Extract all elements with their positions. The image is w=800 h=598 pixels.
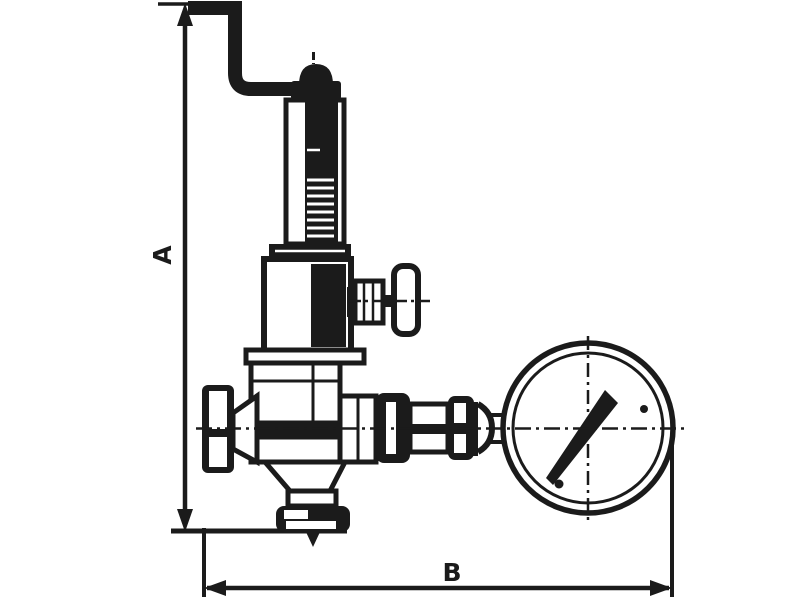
spring-housing <box>286 100 344 244</box>
gauge-dial-dot-left <box>555 480 564 489</box>
dim-b-label: B <box>442 558 461 587</box>
dim-a-label: A <box>148 245 177 265</box>
valve-dimensional-drawing: A B <box>0 0 800 598</box>
body-upper-block <box>251 363 340 423</box>
threaded-stem <box>305 100 338 244</box>
spring-bonnet <box>264 259 351 352</box>
outlet-neck <box>288 491 336 506</box>
body-lower-block <box>251 437 340 462</box>
technical-drawing: A B <box>0 0 800 598</box>
gauge-dial-dot-right <box>640 405 648 413</box>
cap-base <box>291 81 341 100</box>
